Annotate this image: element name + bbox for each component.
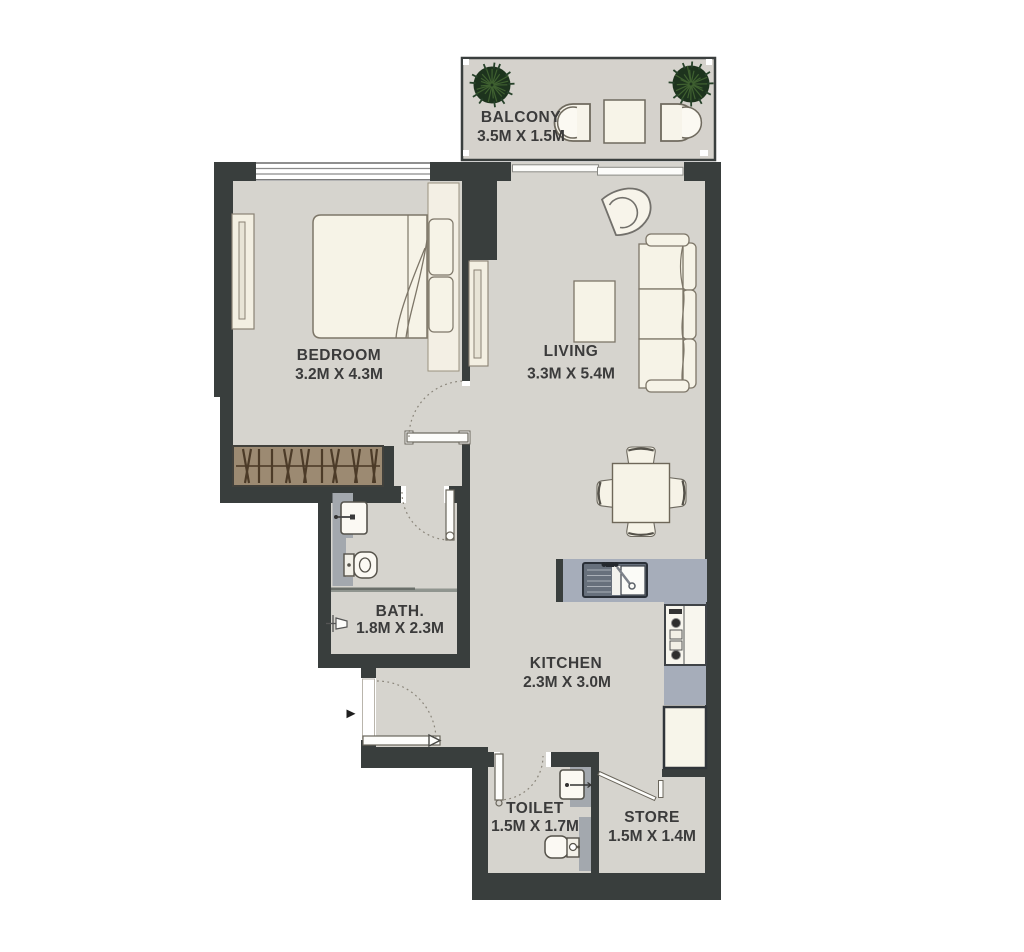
svg-text:BEDROOM: BEDROOM (297, 347, 381, 364)
svg-text:2.3M X 3.0M: 2.3M X 3.0M (523, 674, 611, 691)
svg-text:3.5M X 1.5M: 3.5M X 1.5M (477, 128, 565, 145)
svg-text:3.3M X 5.4M: 3.3M X 5.4M (527, 366, 615, 383)
svg-text:TOILET: TOILET (506, 800, 564, 817)
svg-text:KITCHEN: KITCHEN (530, 655, 602, 672)
svg-text:STORE: STORE (624, 809, 680, 826)
svg-text:1.5M X 1.4M: 1.5M X 1.4M (608, 828, 696, 845)
svg-text:1.5M X 1.7M: 1.5M X 1.7M (491, 818, 579, 835)
svg-text:LIVING: LIVING (544, 343, 599, 360)
svg-text:BATH.: BATH. (376, 603, 425, 620)
svg-text:BALCONY: BALCONY (481, 109, 561, 126)
svg-text:3.2M X 4.3M: 3.2M X 4.3M (295, 366, 383, 383)
svg-text:1.8M X 2.3M: 1.8M X 2.3M (356, 620, 444, 637)
